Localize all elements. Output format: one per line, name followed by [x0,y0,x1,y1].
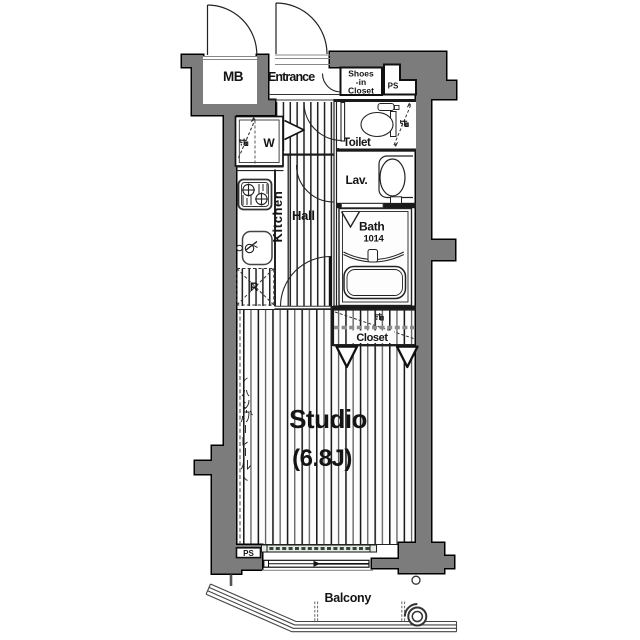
svg-text:PS: PS [243,549,254,558]
svg-text:Toilet: Toilet [343,137,371,149]
svg-text:Closet: Closet [356,332,388,344]
svg-text:Lav.: Lav. [346,173,368,187]
svg-text:(6.8J): (6.8J) [292,445,352,472]
svg-text:MB: MB [223,69,244,84]
svg-text:Entrance: Entrance [268,70,315,84]
svg-text:PS: PS [388,82,399,91]
svg-text:Closet: Closet [348,86,374,96]
svg-text:Balcony: Balcony [325,591,372,605]
svg-text:Hall: Hall [292,208,315,223]
svg-text:Bath: Bath [359,220,384,234]
svg-text:1014: 1014 [364,234,385,245]
svg-text:Studio: Studio [289,404,367,434]
svg-text:R: R [250,282,259,294]
svg-text:W: W [263,136,275,150]
